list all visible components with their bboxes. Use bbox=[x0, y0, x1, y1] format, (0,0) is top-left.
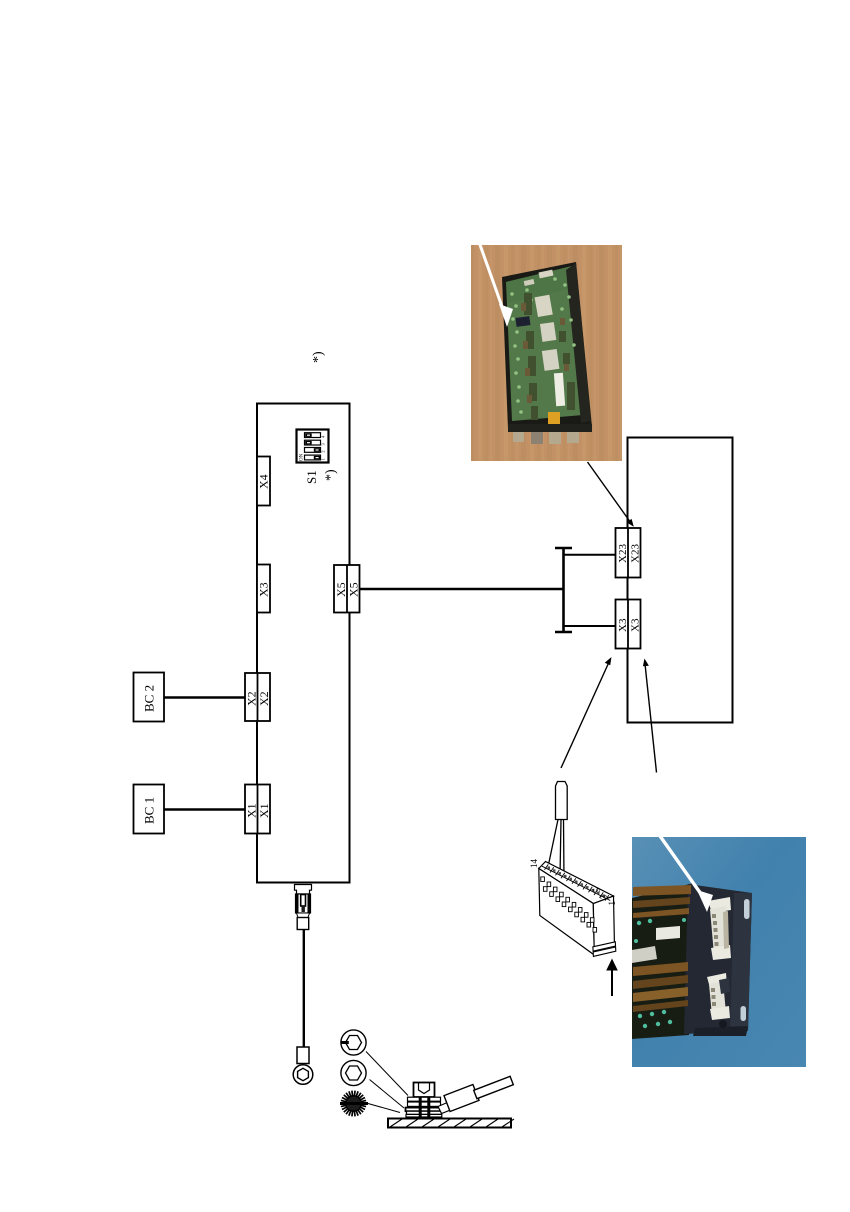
svg-text:X5: X5 bbox=[347, 582, 361, 597]
svg-text:BC 2: BC 2 bbox=[142, 685, 157, 712]
svg-text:X23: X23 bbox=[617, 544, 629, 563]
svg-text:*): *) bbox=[324, 469, 339, 481]
svg-text:X4: X4 bbox=[257, 474, 271, 489]
svg-text:3: 3 bbox=[599, 895, 609, 900]
svg-text:1: 1 bbox=[607, 901, 617, 906]
svg-text:X3: X3 bbox=[630, 618, 642, 632]
svg-text:X23: X23 bbox=[630, 544, 642, 563]
svg-text:14: 14 bbox=[529, 859, 539, 869]
svg-text:BC 1: BC 1 bbox=[142, 797, 157, 824]
svg-text:S1: S1 bbox=[304, 470, 319, 484]
svg-text:X2: X2 bbox=[257, 691, 271, 706]
svg-text:2: 2 bbox=[321, 451, 326, 453]
svg-text:X3: X3 bbox=[617, 618, 629, 632]
svg-text:X3: X3 bbox=[257, 582, 271, 597]
svg-text:*): *) bbox=[311, 351, 326, 363]
svg-text:ON: ON bbox=[300, 453, 305, 461]
svg-text:5: 5 bbox=[592, 888, 602, 893]
svg-text:1: 1 bbox=[321, 458, 326, 460]
svg-text:X1: X1 bbox=[257, 803, 271, 818]
